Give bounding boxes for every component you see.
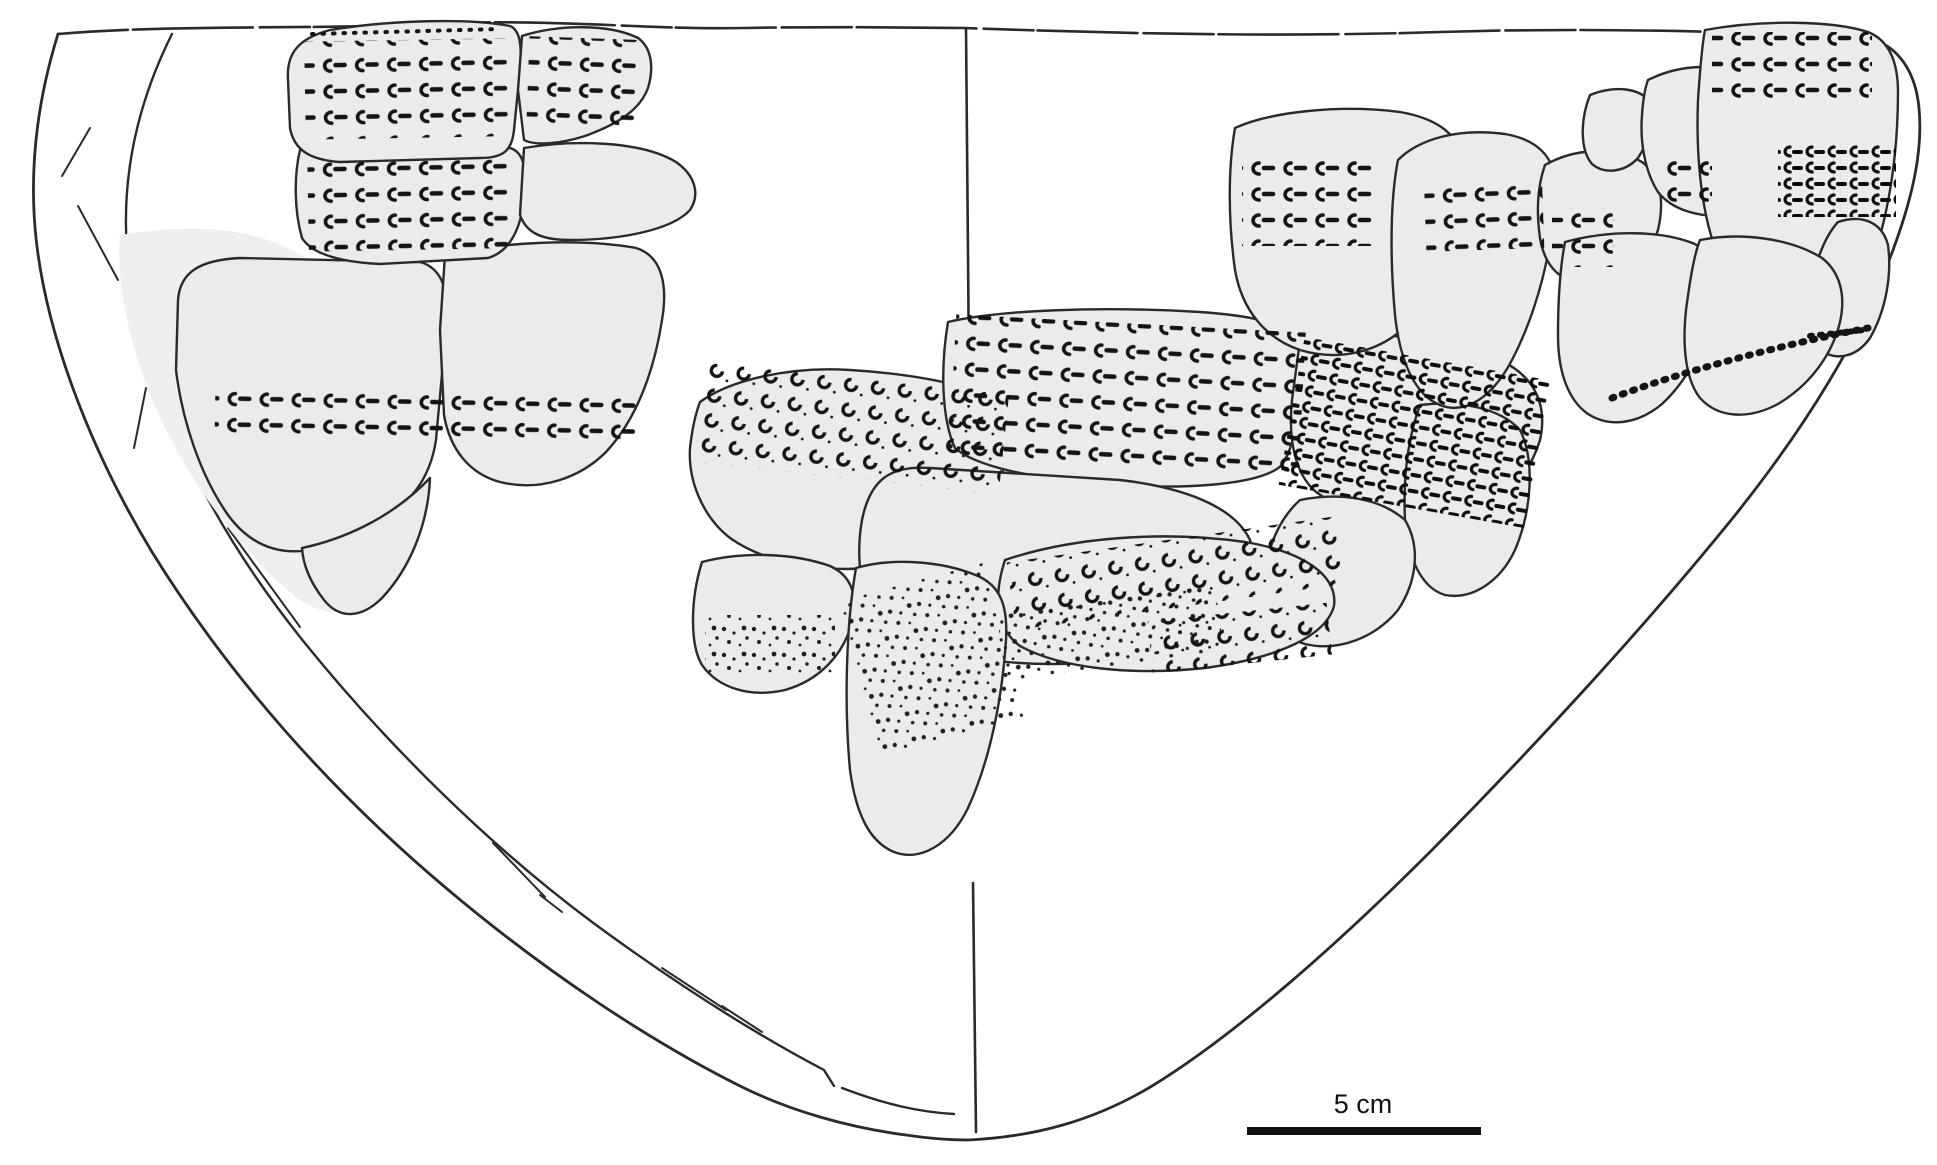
axis-lower [973, 883, 976, 1132]
stamp-band [1666, 150, 1712, 208]
sherd [520, 143, 695, 240]
stamp-band [1242, 158, 1377, 246]
stamp-band [215, 384, 641, 447]
sherd [440, 242, 664, 485]
figure-canvas: 5 cm [0, 0, 1937, 1165]
stamp-band [307, 156, 514, 252]
sherd [1685, 237, 1843, 415]
wall-inner-bottom-line [842, 1088, 954, 1114]
scale-bar: 5 cm [1247, 1089, 1481, 1135]
stamp-band-dense [1778, 142, 1896, 217]
stamp-band [1424, 176, 1544, 252]
vessel-drawing: 5 cm [0, 0, 1937, 1165]
stamp-band [526, 36, 637, 128]
scale-bar-line [1247, 1127, 1481, 1135]
scale-bar-label: 5 cm [1334, 1089, 1393, 1119]
stipple-patch [705, 615, 835, 677]
stamp-band [1712, 32, 1872, 102]
stamp-band [1552, 205, 1614, 267]
stamp-band [304, 38, 511, 140]
